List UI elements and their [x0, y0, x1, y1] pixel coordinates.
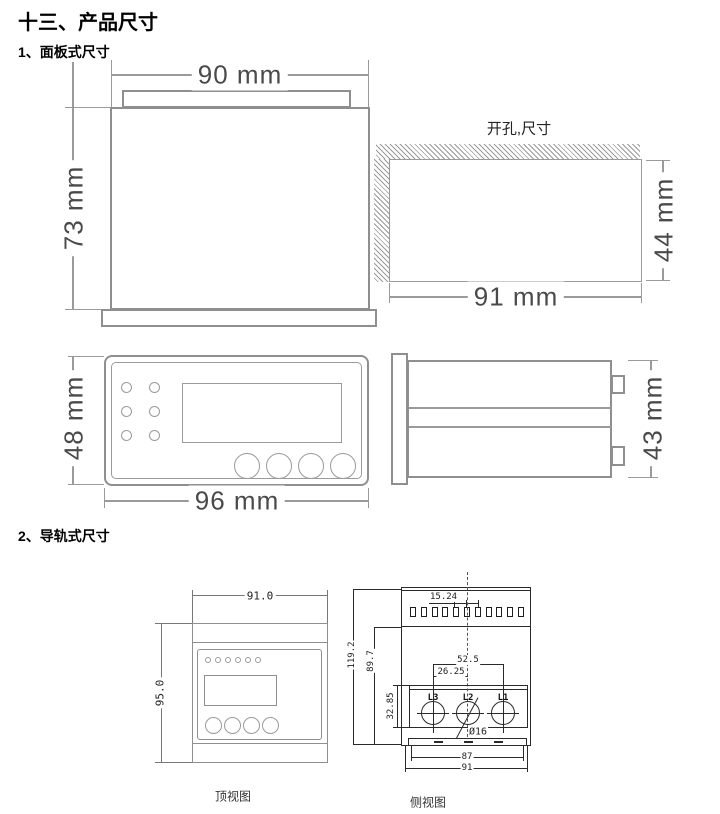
ext-line	[368, 60, 369, 107]
topview-caption: 顶视图	[215, 788, 251, 805]
ext-line	[104, 488, 105, 508]
ext-line	[646, 160, 670, 161]
dim-tick	[478, 600, 479, 607]
terminal-band-line	[192, 642, 328, 643]
back-bezel	[101, 309, 377, 327]
terminal-block-line	[401, 626, 531, 627]
led-indicator	[215, 657, 221, 663]
ext-line	[111, 60, 112, 107]
rail-mark	[434, 741, 443, 743]
back-top-tab	[122, 90, 351, 108]
ext-line	[523, 746, 524, 761]
ext-line	[353, 744, 401, 745]
terminal-band-line	[192, 743, 328, 744]
dim-label-43mm: 43 mm	[638, 370, 669, 466]
rail-mark	[464, 741, 473, 743]
sideview-top-double-line	[401, 590, 531, 591]
dim-label-91: 91	[461, 763, 474, 773]
ct-hole	[491, 701, 515, 725]
led-indicator	[205, 657, 211, 663]
led-indicator	[225, 657, 231, 663]
dim-label-89-7: 89.7	[366, 649, 376, 673]
front-button	[243, 717, 260, 734]
led-indicator	[121, 406, 132, 417]
dim-label-87: 87	[461, 752, 474, 762]
section1-heading: 1、面板式尺寸	[18, 42, 110, 62]
display-window	[182, 383, 342, 443]
wall-hatch-top	[376, 144, 640, 159]
terminal	[507, 607, 513, 617]
cutout-rect	[389, 159, 642, 282]
phase-label-l3: L3	[428, 693, 439, 703]
terminal	[496, 607, 502, 617]
page-title: 十三、产品尺寸	[18, 6, 158, 35]
dim-line-89-7	[374, 627, 375, 745]
dim-label-44mm: 44 mm	[649, 172, 680, 268]
led-indicator	[235, 657, 241, 663]
led-indicator	[149, 382, 160, 393]
front-button	[224, 717, 241, 734]
section2-heading: 2、导轨式尺寸	[18, 526, 110, 546]
ext-line	[389, 283, 390, 303]
terminal	[410, 607, 416, 617]
ext-line	[65, 309, 102, 310]
led-indicator	[149, 406, 160, 417]
back-body	[110, 107, 370, 310]
profile-groove-line	[409, 426, 611, 428]
profile-body	[407, 360, 612, 478]
ext-line	[353, 589, 401, 590]
terminal	[518, 607, 524, 617]
front-button	[205, 717, 222, 734]
led-indicator	[245, 657, 251, 663]
profile-bezel	[391, 353, 408, 485]
ext-line	[393, 685, 409, 686]
dim-label-26-25: 26.25	[436, 667, 465, 677]
dim-label-73mm: 73 mm	[59, 160, 90, 256]
profile-groove-line	[409, 407, 611, 409]
front-button	[298, 453, 324, 479]
dim-label-119-2: 119.2	[347, 640, 357, 669]
ext-line	[411, 746, 412, 761]
ext-line	[628, 477, 658, 478]
led-indicator	[149, 430, 160, 441]
led-indicator	[121, 430, 132, 441]
dim-label-96mm: 96 mm	[189, 486, 285, 517]
sideview-caption: 侧视图	[410, 794, 446, 811]
dim-label-90mm: 90 mm	[192, 60, 288, 91]
front-button	[262, 717, 279, 734]
cutout-label: 开孔,尺寸	[487, 118, 551, 139]
led-indicator	[121, 382, 132, 393]
mounting-clip	[611, 375, 625, 394]
mounting-clip	[611, 446, 625, 466]
dim-label-95-0: 95.0	[154, 678, 167, 709]
dim-line-32-85	[397, 685, 398, 728]
ext-line	[527, 746, 528, 772]
ext-line	[641, 283, 642, 303]
phase-label-l1: L1	[498, 693, 509, 703]
phase-label-l2: L2	[463, 693, 474, 703]
wall-hatch-left	[374, 159, 389, 282]
ext-line	[368, 488, 369, 508]
terminal	[442, 607, 448, 617]
terminal	[486, 607, 492, 617]
terminal	[475, 607, 481, 617]
front-button	[330, 453, 356, 479]
front-button	[234, 453, 260, 479]
ct-hole	[421, 701, 445, 725]
dim-label-91mm: 91 mm	[468, 282, 564, 313]
ext-line	[374, 627, 401, 628]
dim-label-32-85: 32.85	[386, 691, 396, 720]
rail-mark	[494, 741, 503, 743]
led-indicator	[255, 657, 261, 663]
terminal	[432, 607, 438, 617]
dim-label-15-24: 15.24	[429, 592, 458, 602]
dim-label-48mm: 48 mm	[59, 370, 90, 466]
manual-page: 十三、产品尺寸 1、面板式尺寸 2、导轨式尺寸 90 mm 73 mm 开孔,尺…	[0, 0, 720, 814]
dim-label-91-0: 91.0	[245, 590, 276, 603]
ct-hole	[456, 701, 480, 725]
ext-line	[646, 280, 670, 281]
display-window	[204, 675, 277, 706]
terminal	[421, 607, 427, 617]
dim-label-52-5: 52.5	[456, 655, 480, 665]
ext-line	[628, 360, 658, 361]
ext-line	[393, 727, 409, 728]
terminal	[453, 607, 459, 617]
front-button	[266, 453, 292, 479]
dim-label-dia16: Ø16	[468, 727, 488, 738]
